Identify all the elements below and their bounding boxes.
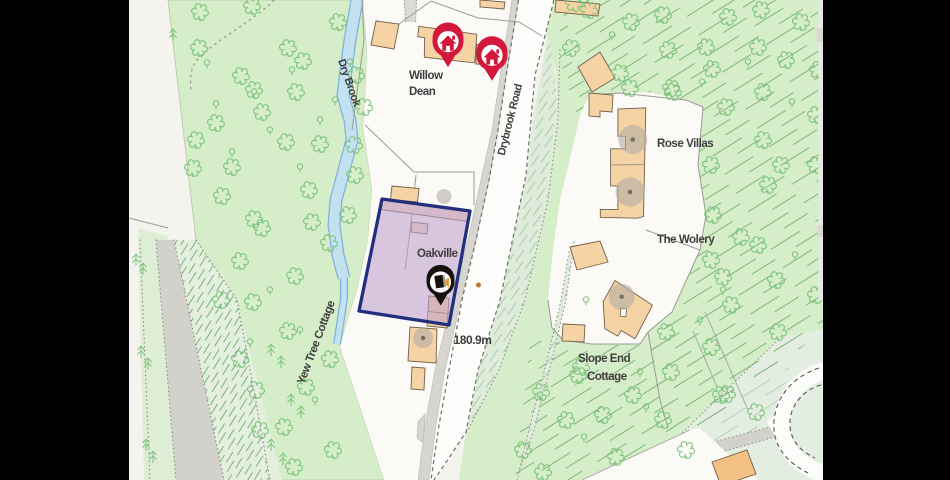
svg-text:Cottage: Cottage bbox=[587, 371, 627, 383]
svg-text:Dean: Dean bbox=[409, 86, 436, 98]
svg-text:180.9m: 180.9m bbox=[454, 333, 492, 347]
svg-text:Rose Villas: Rose Villas bbox=[657, 138, 713, 150]
svg-text:Slope End: Slope End bbox=[578, 353, 631, 365]
svg-text:Willow: Willow bbox=[409, 70, 443, 82]
svg-text:The Wolery: The Wolery bbox=[657, 234, 715, 246]
svg-text:Oakville: Oakville bbox=[417, 248, 458, 260]
